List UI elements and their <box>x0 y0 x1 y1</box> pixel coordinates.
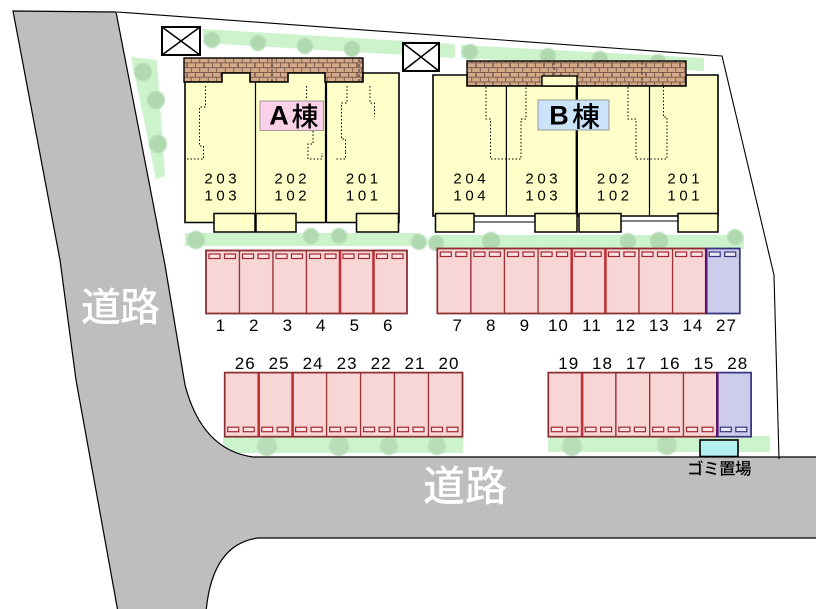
svg-text:4: 4 <box>316 316 326 335</box>
svg-text:8: 8 <box>486 316 496 335</box>
svg-text:202: 202 <box>274 171 310 188</box>
svg-text:22: 22 <box>371 354 392 373</box>
svg-text:203: 203 <box>204 171 240 188</box>
svg-text:A: A <box>269 101 289 131</box>
svg-text:10: 10 <box>548 316 569 335</box>
svg-text:201: 201 <box>346 171 382 188</box>
svg-text:101: 101 <box>346 188 382 205</box>
svg-text:7: 7 <box>452 316 462 335</box>
svg-text:101: 101 <box>667 188 703 205</box>
svg-text:202: 202 <box>597 171 633 188</box>
svg-text:13: 13 <box>649 316 670 335</box>
svg-text:17: 17 <box>626 354 647 373</box>
svg-text:16: 16 <box>660 354 681 373</box>
svg-text:103: 103 <box>525 188 561 205</box>
svg-text:104: 104 <box>453 188 489 205</box>
svg-text:102: 102 <box>597 188 633 205</box>
svg-text:24: 24 <box>303 354 324 373</box>
svg-text:203: 203 <box>525 171 561 188</box>
svg-text:9: 9 <box>520 316 530 335</box>
svg-text:28: 28 <box>727 354 748 373</box>
svg-text:18: 18 <box>592 354 613 373</box>
svg-text:2: 2 <box>249 316 259 335</box>
svg-text:21: 21 <box>405 354 426 373</box>
svg-text:19: 19 <box>558 354 579 373</box>
svg-text:1: 1 <box>216 316 226 335</box>
svg-text:6: 6 <box>383 316 393 335</box>
svg-text:25: 25 <box>269 354 290 373</box>
svg-text:B: B <box>549 101 569 131</box>
svg-text:14: 14 <box>682 316 703 335</box>
svg-text:12: 12 <box>615 316 636 335</box>
svg-text:3: 3 <box>283 316 293 335</box>
svg-text:23: 23 <box>337 354 358 373</box>
svg-text:204: 204 <box>453 171 489 188</box>
svg-text:5: 5 <box>350 316 360 335</box>
svg-text:26: 26 <box>235 354 256 373</box>
svg-text:20: 20 <box>439 354 460 373</box>
svg-text:15: 15 <box>693 354 714 373</box>
svg-text:11: 11 <box>582 316 602 335</box>
svg-text:27: 27 <box>716 316 737 335</box>
svg-text:102: 102 <box>274 188 310 205</box>
svg-text:103: 103 <box>204 188 240 205</box>
svg-text:201: 201 <box>667 171 703 188</box>
